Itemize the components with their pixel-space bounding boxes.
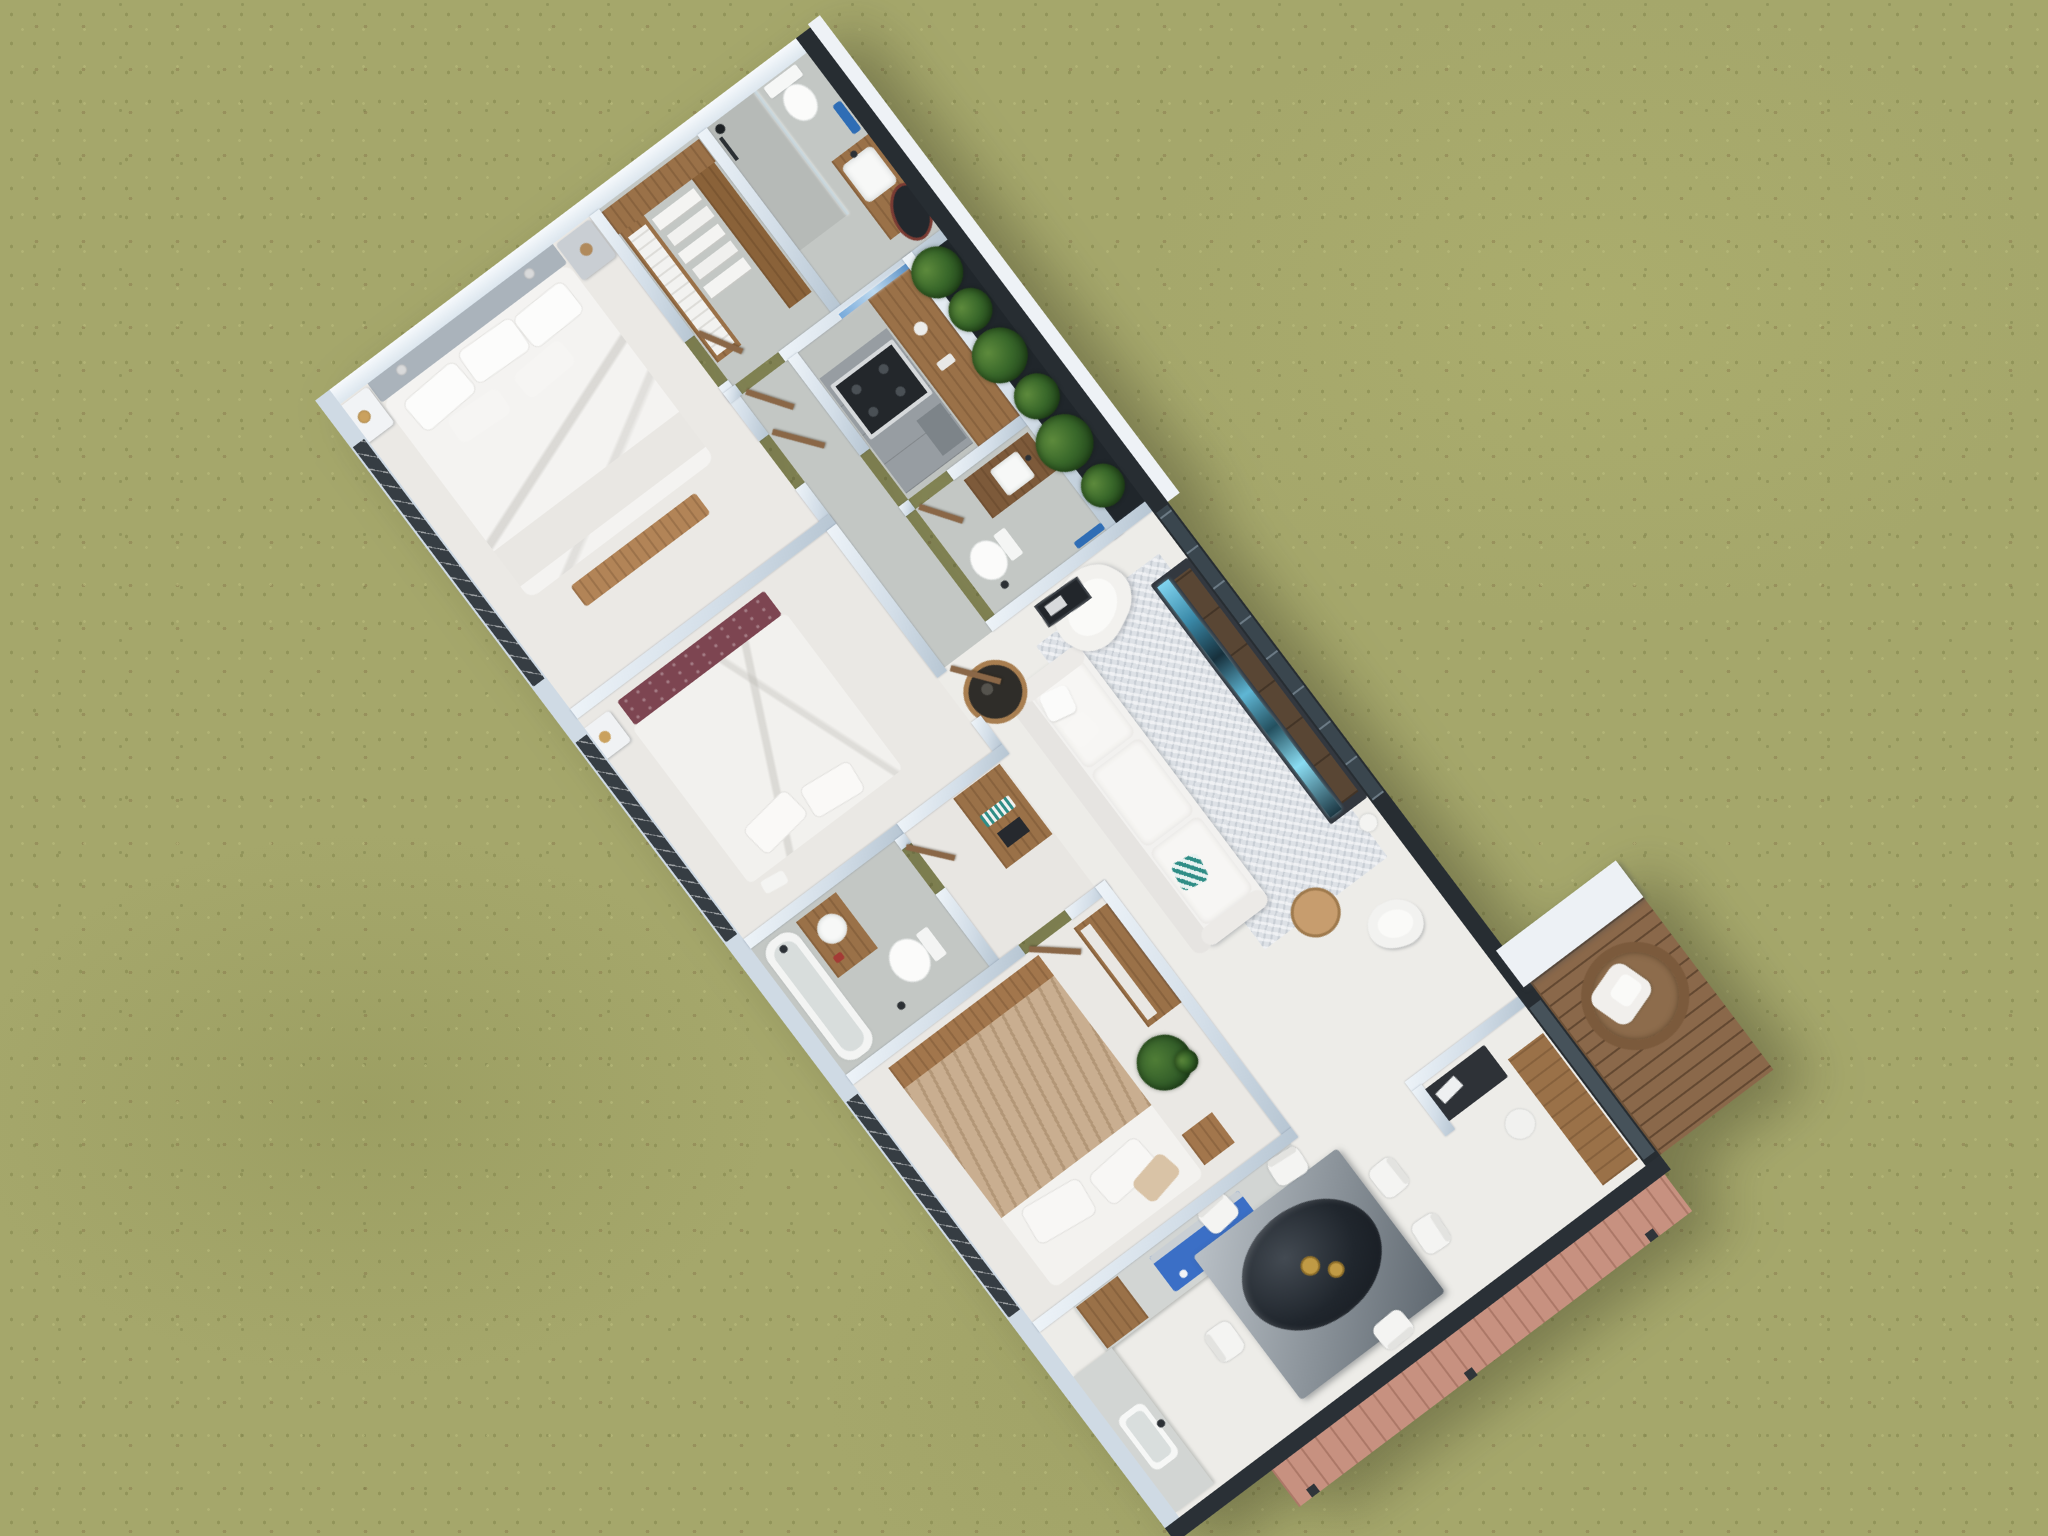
aerial-scene: { "scene": { "type": "3d-floor-plan-aeri… xyxy=(0,0,2048,1536)
lamp-gold-icon xyxy=(596,728,613,745)
sink-basin-round xyxy=(811,908,853,950)
decor-dot xyxy=(979,681,996,698)
counter-item-tray xyxy=(936,353,956,372)
table-lamp-icon xyxy=(355,408,373,426)
art-print xyxy=(1044,595,1067,616)
knob-icon xyxy=(577,240,595,258)
lounge-cushion xyxy=(1375,906,1416,941)
console-paper xyxy=(1435,1076,1463,1104)
faucet-icon xyxy=(1024,454,1032,462)
desk-decor-dark xyxy=(997,817,1030,848)
red-cup-icon xyxy=(832,951,845,963)
knob-icon xyxy=(1178,1268,1189,1279)
house-floorplan xyxy=(315,27,1671,1536)
counter-item-cup xyxy=(911,319,931,339)
